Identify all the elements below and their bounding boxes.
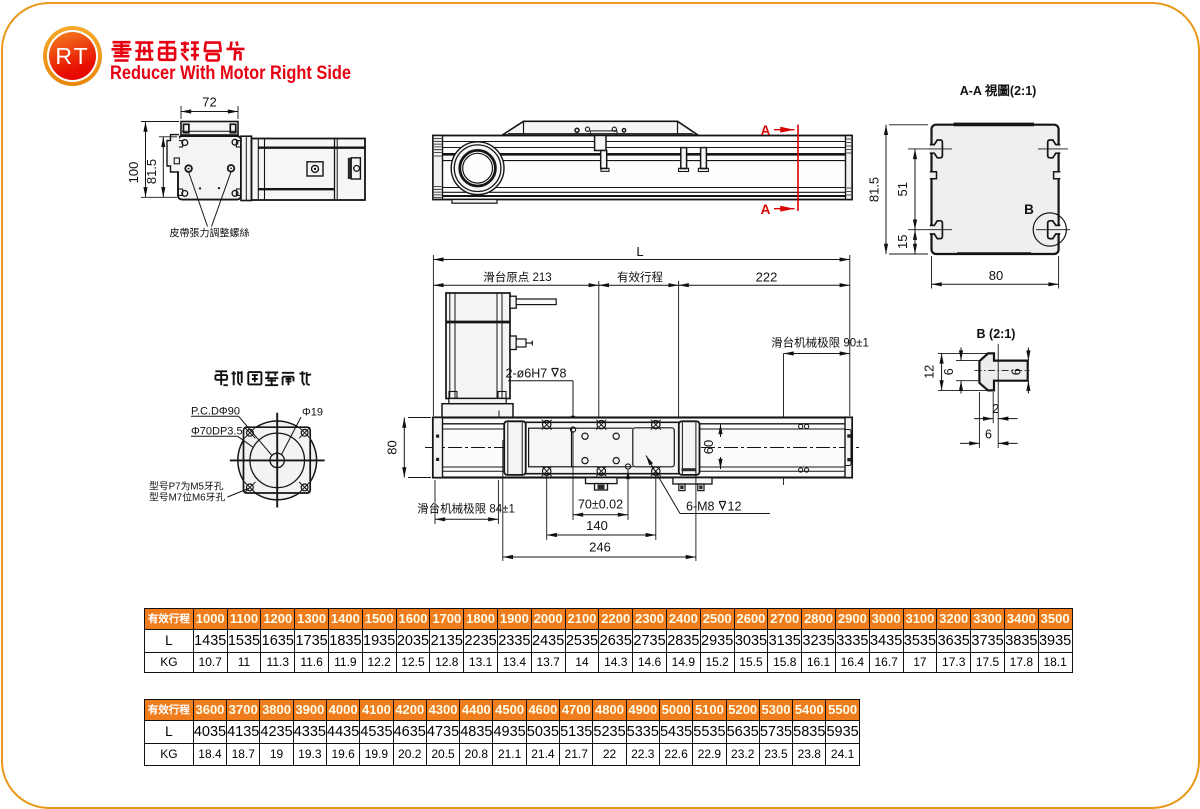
svg-text:滑台机械极限 84±1: 滑台机械极限 84±1 [417, 502, 515, 516]
svg-text:12: 12 [923, 365, 937, 379]
svg-text:A: A [761, 202, 771, 217]
svg-text:6-M8: 6-M8 [686, 500, 715, 514]
svg-text:滑台原点 213: 滑台原点 213 [483, 270, 551, 284]
svg-text:15: 15 [895, 235, 910, 249]
svg-text:81.5: 81.5 [144, 159, 159, 184]
svg-text:有效行程: 有效行程 [617, 270, 663, 284]
svg-text:A: A [761, 123, 771, 138]
svg-text:滑台机械极限 90±1: 滑台机械极限 90±1 [771, 336, 869, 350]
svg-text:222: 222 [756, 270, 778, 285]
svg-text:8: 8 [560, 367, 567, 381]
svg-text:2: 2 [992, 402, 999, 416]
svg-text:80: 80 [989, 268, 1003, 283]
svg-text:72: 72 [202, 95, 216, 110]
svg-text:12: 12 [728, 500, 742, 514]
svg-text:246: 246 [589, 540, 611, 555]
svg-text:70±0.02: 70±0.02 [578, 498, 623, 512]
svg-text:6: 6 [985, 428, 992, 442]
svg-text:L: L [636, 244, 643, 259]
svg-text:B (2:1): B (2:1) [977, 327, 1016, 341]
svg-text:型号P7为M5牙孔: 型号P7为M5牙孔 [149, 480, 224, 493]
svg-text:6: 6 [942, 368, 956, 375]
svg-text:2-ø6H7: 2-ø6H7 [506, 367, 548, 381]
svg-text:100: 100 [126, 162, 141, 184]
svg-text:皮帶張力調整螺絲: 皮帶張力調整螺絲 [170, 227, 250, 240]
svg-text:81.5: 81.5 [867, 177, 882, 202]
svg-text:型号M7位M6牙孔: 型号M7位M6牙孔 [149, 491, 225, 504]
svg-text:60: 60 [701, 440, 716, 454]
svg-text:80: 80 [385, 440, 400, 454]
svg-text:51: 51 [895, 182, 910, 196]
svg-text:140: 140 [586, 518, 608, 533]
svg-text:6: 6 [1010, 368, 1024, 375]
svg-text:Φ19: Φ19 [302, 407, 323, 419]
svg-text:B: B [1024, 202, 1034, 217]
svg-text:A-A 視圖(2:1): A-A 視圖(2:1) [960, 83, 1037, 98]
